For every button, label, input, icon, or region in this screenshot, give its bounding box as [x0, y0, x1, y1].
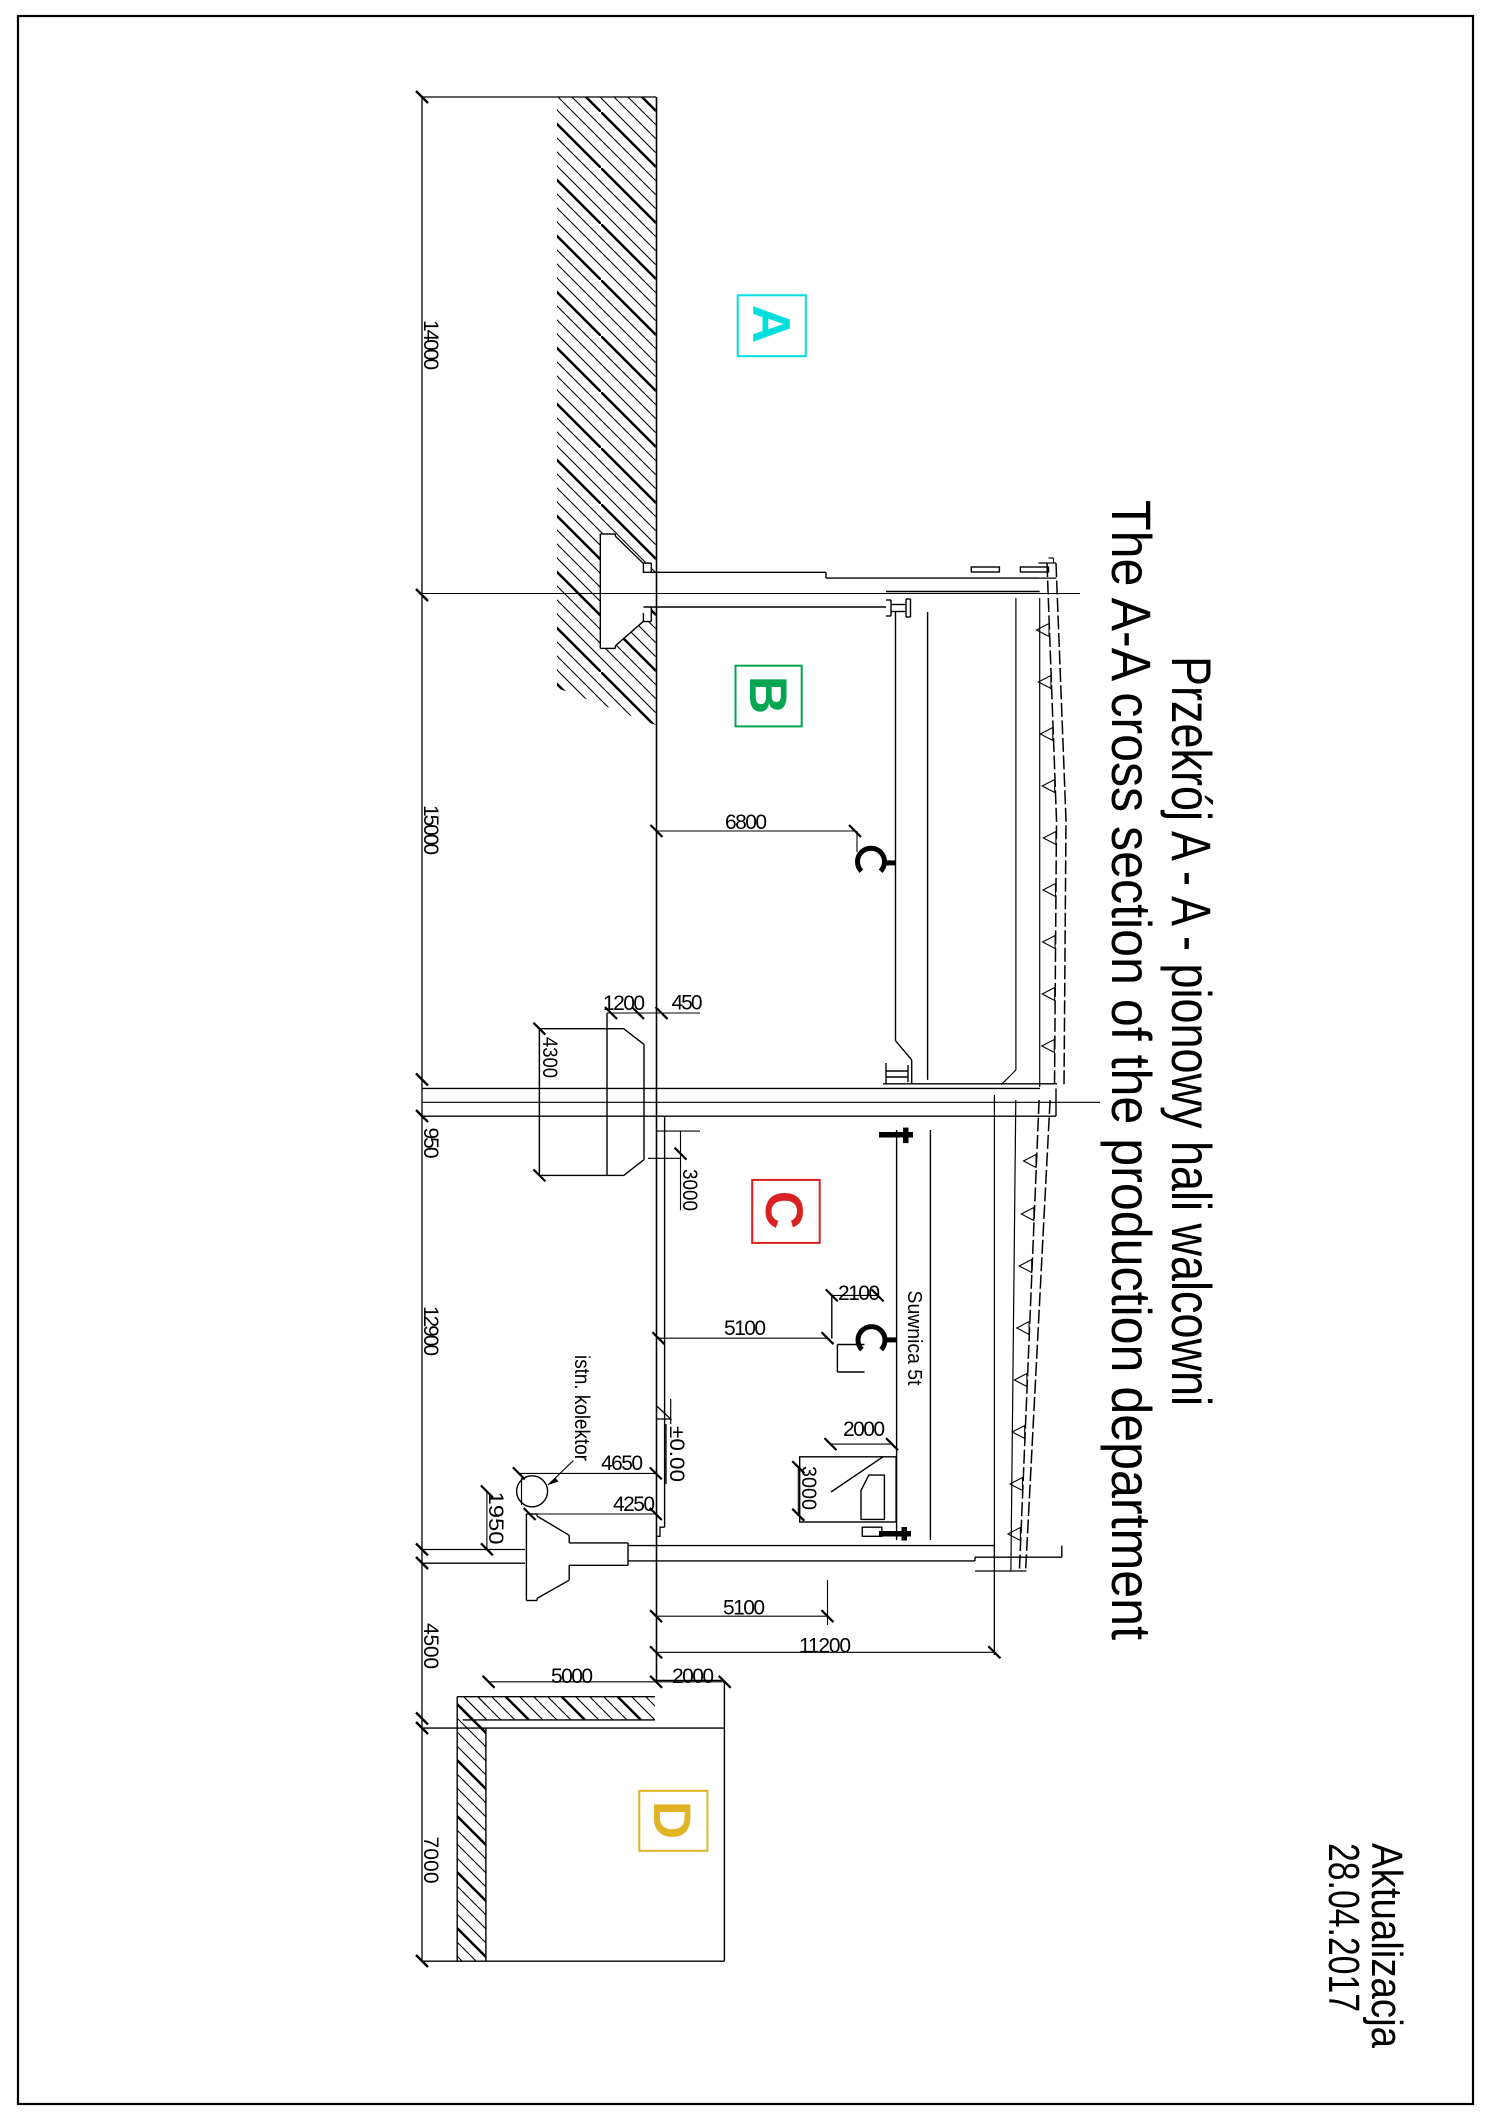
- svg-text:B: B: [738, 676, 797, 714]
- svg-text:D: D: [642, 1801, 701, 1839]
- svg-text:2000: 2000: [672, 1665, 714, 1688]
- svg-text:1200: 1200: [603, 992, 645, 1015]
- svg-text:12900: 12900: [419, 1306, 442, 1356]
- svg-text:4650: 4650: [601, 1452, 643, 1475]
- svg-text:Przekrój A - A - pionowy hali: Przekrój A - A - pionowy hali walcowni: [1160, 656, 1223, 1406]
- svg-text:4250: 4250: [613, 1493, 655, 1516]
- svg-text:A: A: [741, 305, 800, 343]
- svg-text:2100: 2100: [838, 1282, 880, 1305]
- svg-text:14000: 14000: [419, 320, 442, 370]
- svg-text:6800: 6800: [725, 811, 767, 834]
- svg-text:28.04.2017: 28.04.2017: [1319, 1843, 1368, 2012]
- svg-text:4300: 4300: [538, 1037, 561, 1078]
- svg-text:15000: 15000: [419, 805, 442, 855]
- svg-text:1950: 1950: [484, 1492, 507, 1545]
- svg-text:5000: 5000: [551, 1665, 593, 1688]
- svg-text:7000: 7000: [419, 1837, 442, 1884]
- svg-text:11200: 11200: [799, 1635, 851, 1658]
- svg-text:3000: 3000: [678, 1169, 701, 1211]
- svg-text:2000: 2000: [843, 1418, 885, 1441]
- svg-text:3000: 3000: [797, 1466, 820, 1510]
- svg-text:The A-A cross section of the p: The A-A cross section of the production …: [1100, 500, 1163, 1640]
- svg-text:450: 450: [672, 992, 703, 1015]
- svg-text:±0.00: ±0.00: [665, 1426, 688, 1482]
- svg-text:950: 950: [419, 1128, 442, 1159]
- svg-text:5100: 5100: [723, 1597, 765, 1620]
- svg-text:Suwnica 5t: Suwnica 5t: [903, 1291, 925, 1386]
- svg-text:C: C: [754, 1191, 813, 1229]
- svg-text:4500: 4500: [419, 1623, 442, 1669]
- svg-text:5100: 5100: [724, 1317, 766, 1340]
- svg-text:Aktualizacja: Aktualizacja: [1362, 1843, 1411, 2048]
- svg-text:istn. kolektor: istn. kolektor: [570, 1355, 593, 1461]
